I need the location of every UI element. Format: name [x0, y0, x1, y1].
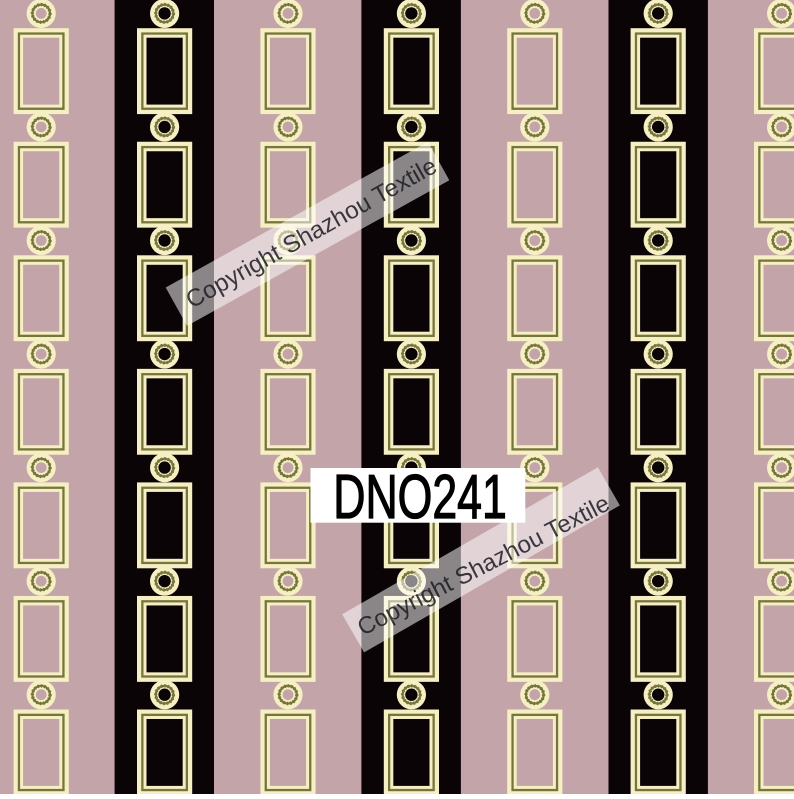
svg-text:DNO241: DNO241 — [333, 463, 507, 532]
